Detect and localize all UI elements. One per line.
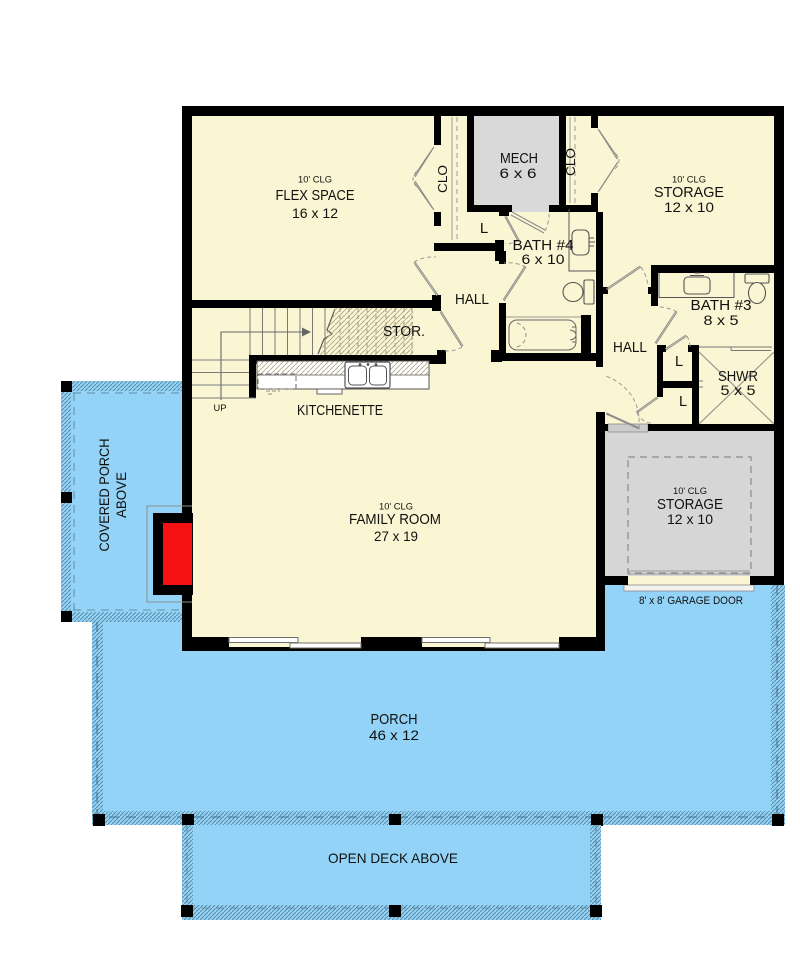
svg-text:46 x 12: 46 x 12: [369, 727, 419, 743]
svg-text:8' x 8' GARAGE DOOR: 8' x 8' GARAGE DOOR: [639, 595, 743, 607]
svg-text:HALL: HALL: [613, 340, 647, 356]
svg-text:10' CLG: 10' CLG: [672, 175, 706, 185]
svg-text:16 x 12: 16 x 12: [292, 205, 338, 221]
svg-text:10' CLG: 10' CLG: [298, 175, 332, 185]
svg-text:FAMILY ROOM: FAMILY ROOM: [349, 512, 441, 528]
svg-text:CLO: CLO: [564, 148, 578, 176]
svg-text:STOR.: STOR.: [383, 324, 425, 340]
svg-text:L: L: [480, 220, 488, 237]
svg-text:6 x 10: 6 x 10: [522, 251, 565, 267]
svg-text:KITCHENETTE: KITCHENETTE: [297, 403, 383, 419]
svg-text:L: L: [679, 394, 687, 410]
svg-text:6 x 6: 6 x 6: [500, 165, 537, 181]
svg-text:ABOVE: ABOVE: [113, 472, 129, 518]
svg-text:PORCH: PORCH: [371, 711, 418, 728]
svg-text:CLO: CLO: [436, 165, 450, 193]
svg-text:8 x 5: 8 x 5: [704, 312, 739, 328]
svg-text:10' CLG: 10' CLG: [379, 502, 413, 512]
svg-text:L: L: [675, 354, 683, 370]
svg-text:12 x 10: 12 x 10: [667, 511, 713, 527]
svg-text:5 x 5: 5 x 5: [721, 382, 756, 398]
svg-text:OPEN DECK ABOVE: OPEN DECK ABOVE: [328, 850, 458, 866]
svg-text:COVERED PORCH: COVERED PORCH: [96, 439, 112, 552]
svg-text:HALL: HALL: [455, 292, 489, 308]
svg-text:UP: UP: [214, 403, 227, 413]
svg-text:10' CLG: 10' CLG: [673, 486, 707, 496]
svg-text:FLEX SPACE: FLEX SPACE: [276, 187, 355, 204]
svg-text:12 x 10: 12 x 10: [664, 199, 714, 215]
svg-text:27 x 19: 27 x 19: [374, 528, 418, 544]
